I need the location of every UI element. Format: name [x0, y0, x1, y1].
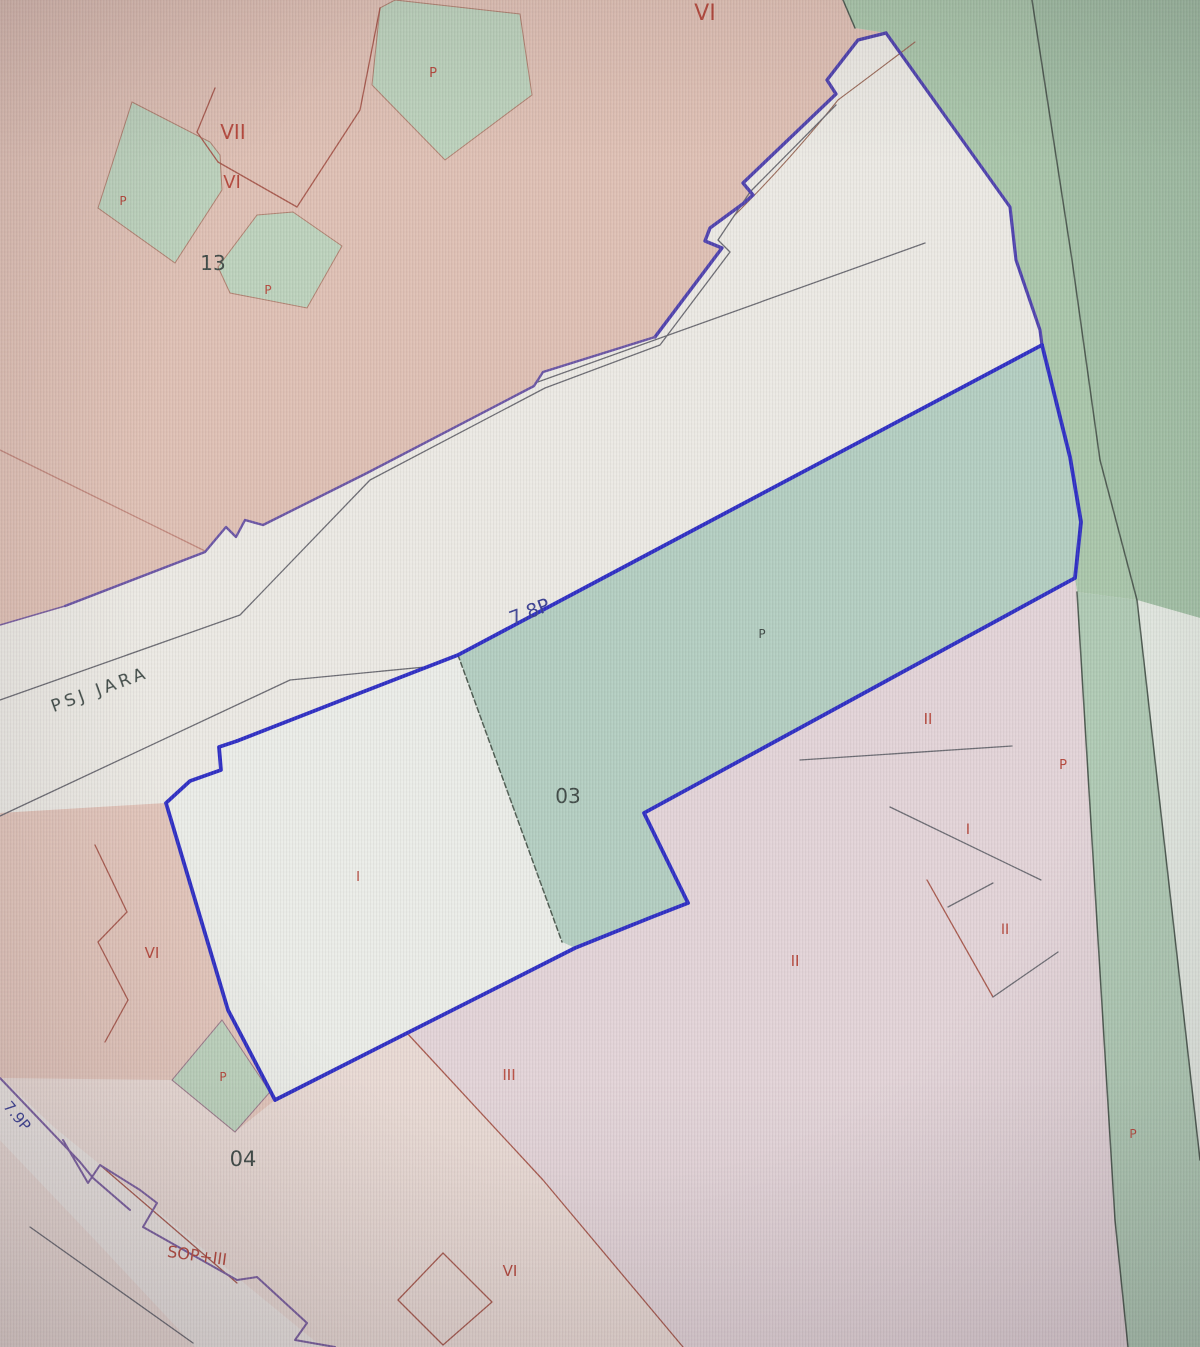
green-zone-p-selected: P [758, 627, 765, 641]
height-label-vii: VII [220, 120, 245, 144]
parcel-number-04: 04 [230, 1147, 257, 1171]
parcel-number-13: 13 [200, 251, 225, 275]
height-label-i-east: I [966, 822, 970, 838]
green-zone-p-strip-south: P [1129, 1127, 1136, 1141]
height-label-vi-bottom: VI [503, 1262, 518, 1280]
green-zone-p-1: P [119, 194, 126, 208]
parcel-number-03: 03 [555, 784, 580, 808]
green-zone-p-strip: P [1059, 758, 1067, 773]
height-label-vi-west: VI [145, 944, 160, 962]
green-zone-p-top: P [429, 66, 437, 81]
green-zone-p-southwest: P [219, 1070, 226, 1084]
height-label-vi-2: VI [223, 172, 241, 193]
height-label-ii-2: II [791, 952, 800, 970]
height-label-ii-3: II [1001, 922, 1009, 938]
height-label-ii-1: II [924, 710, 933, 728]
height-label-i-selected: I [356, 870, 360, 885]
height-label-iii: III [502, 1066, 515, 1084]
cadastral-map[interactable]: VI P VII VI P 13 P 7.8P PSJ JARA P 03 II… [0, 0, 1200, 1347]
green-zone-p-2: P [264, 283, 271, 297]
height-label-vi-top: VI [694, 1, 716, 26]
